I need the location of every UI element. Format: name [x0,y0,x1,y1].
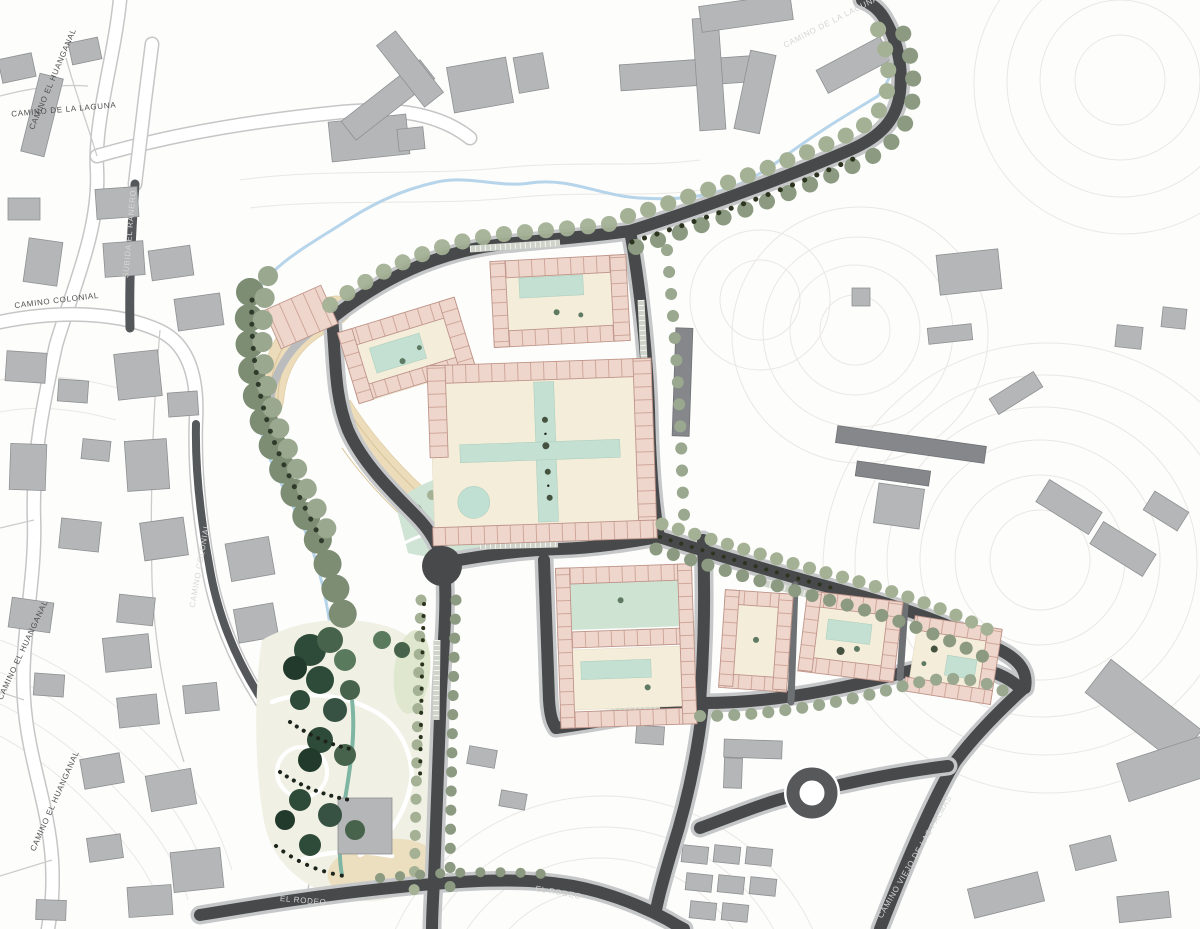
street-label-laguna-topright: CAMINO DE LA LAGUNA [782,0,880,50]
block-c [427,358,657,546]
masterplan-viewport: CAMINO EL HUANGANAL CAMINO DE LA LAGUNA … [0,0,1200,929]
masterplan-canvas: CAMINO EL HUANGANAL CAMINO DE LA LAGUNA … [0,0,1200,929]
block-g [719,590,794,693]
street-label-palmas: CAMINO VIEJO DE LAS PALMAS [876,794,954,920]
block-f [555,564,697,729]
block-b [490,254,630,347]
